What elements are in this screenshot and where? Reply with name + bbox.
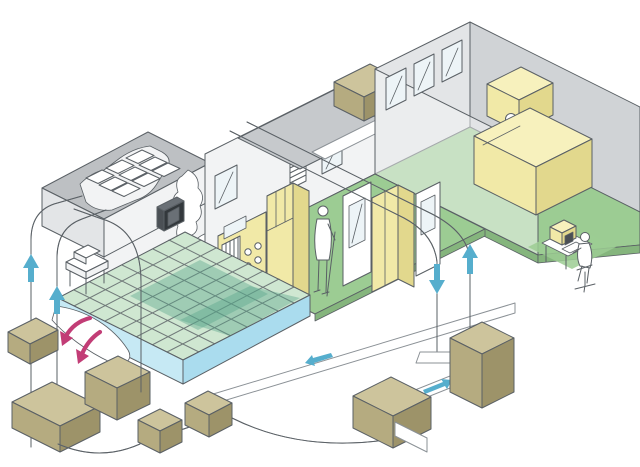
- ahu-box: [138, 409, 182, 453]
- airflow-arrow-up: [462, 244, 478, 274]
- cleanroom-hvac-diagram: [0, 0, 640, 467]
- airflow-arrow-up: [23, 254, 39, 282]
- ahu-box-right: [450, 322, 514, 408]
- cleanroom-door: [343, 182, 371, 286]
- equipment-cabinet-chamber: [372, 185, 414, 292]
- isometric-illustration: [0, 0, 640, 467]
- ahu-box-small: [8, 318, 58, 364]
